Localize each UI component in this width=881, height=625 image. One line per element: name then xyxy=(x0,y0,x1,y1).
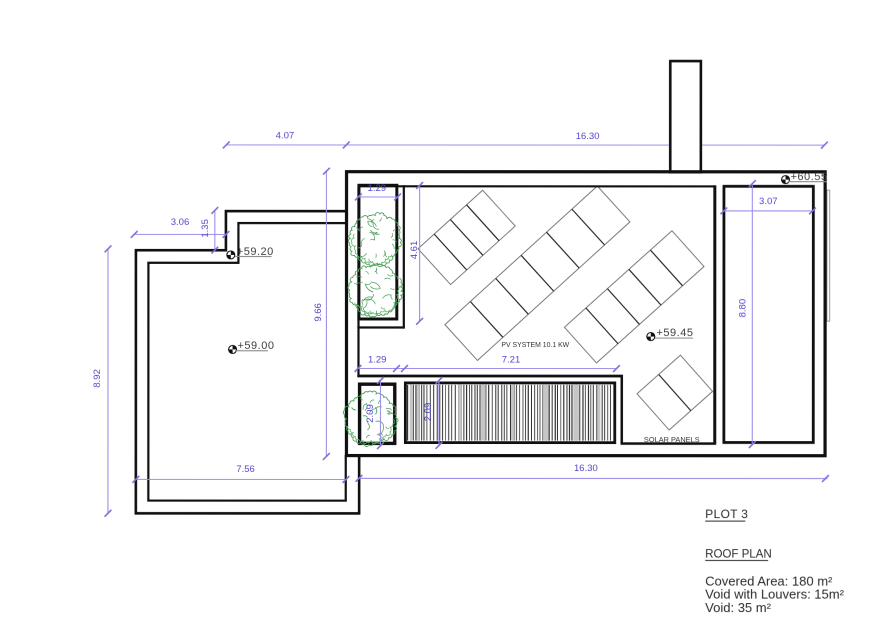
svg-text:16.30: 16.30 xyxy=(576,131,600,142)
svg-text:+59.45: +59.45 xyxy=(656,327,693,339)
svg-text:3.07: 3.07 xyxy=(759,196,778,207)
svg-text:9.66: 9.66 xyxy=(313,303,324,322)
svg-text:1.29: 1.29 xyxy=(368,183,387,194)
svg-text:4.07: 4.07 xyxy=(276,130,295,141)
svg-text:16.30: 16.30 xyxy=(574,463,598,474)
svg-text:+59.00: +59.00 xyxy=(237,340,274,352)
svg-text:1.35: 1.35 xyxy=(200,219,211,238)
svg-text:ROOF PLAN: ROOF PLAN xyxy=(705,549,771,561)
svg-text:SOLAR PANELS: SOLAR PANELS xyxy=(644,435,700,444)
svg-text:2.09: 2.09 xyxy=(423,403,434,422)
svg-text:3.06: 3.06 xyxy=(171,217,190,228)
svg-text:Void: 35 m²: Void: 35 m² xyxy=(705,600,771,615)
svg-text:1.29: 1.29 xyxy=(368,355,387,366)
svg-text:7.21: 7.21 xyxy=(502,355,521,366)
svg-text:2.09: 2.09 xyxy=(365,404,376,423)
svg-text:PV SYSTEM 10.1 KW: PV SYSTEM 10.1 KW xyxy=(501,342,569,349)
svg-text:8.80: 8.80 xyxy=(737,299,748,318)
svg-text:+60.55: +60.55 xyxy=(791,171,828,183)
svg-text:8.92: 8.92 xyxy=(92,369,103,388)
svg-text:7.56: 7.56 xyxy=(236,464,255,475)
svg-text:PLOT 3: PLOT 3 xyxy=(705,507,748,521)
svg-text:+59.20: +59.20 xyxy=(237,246,274,258)
svg-text:4.61: 4.61 xyxy=(409,241,420,260)
